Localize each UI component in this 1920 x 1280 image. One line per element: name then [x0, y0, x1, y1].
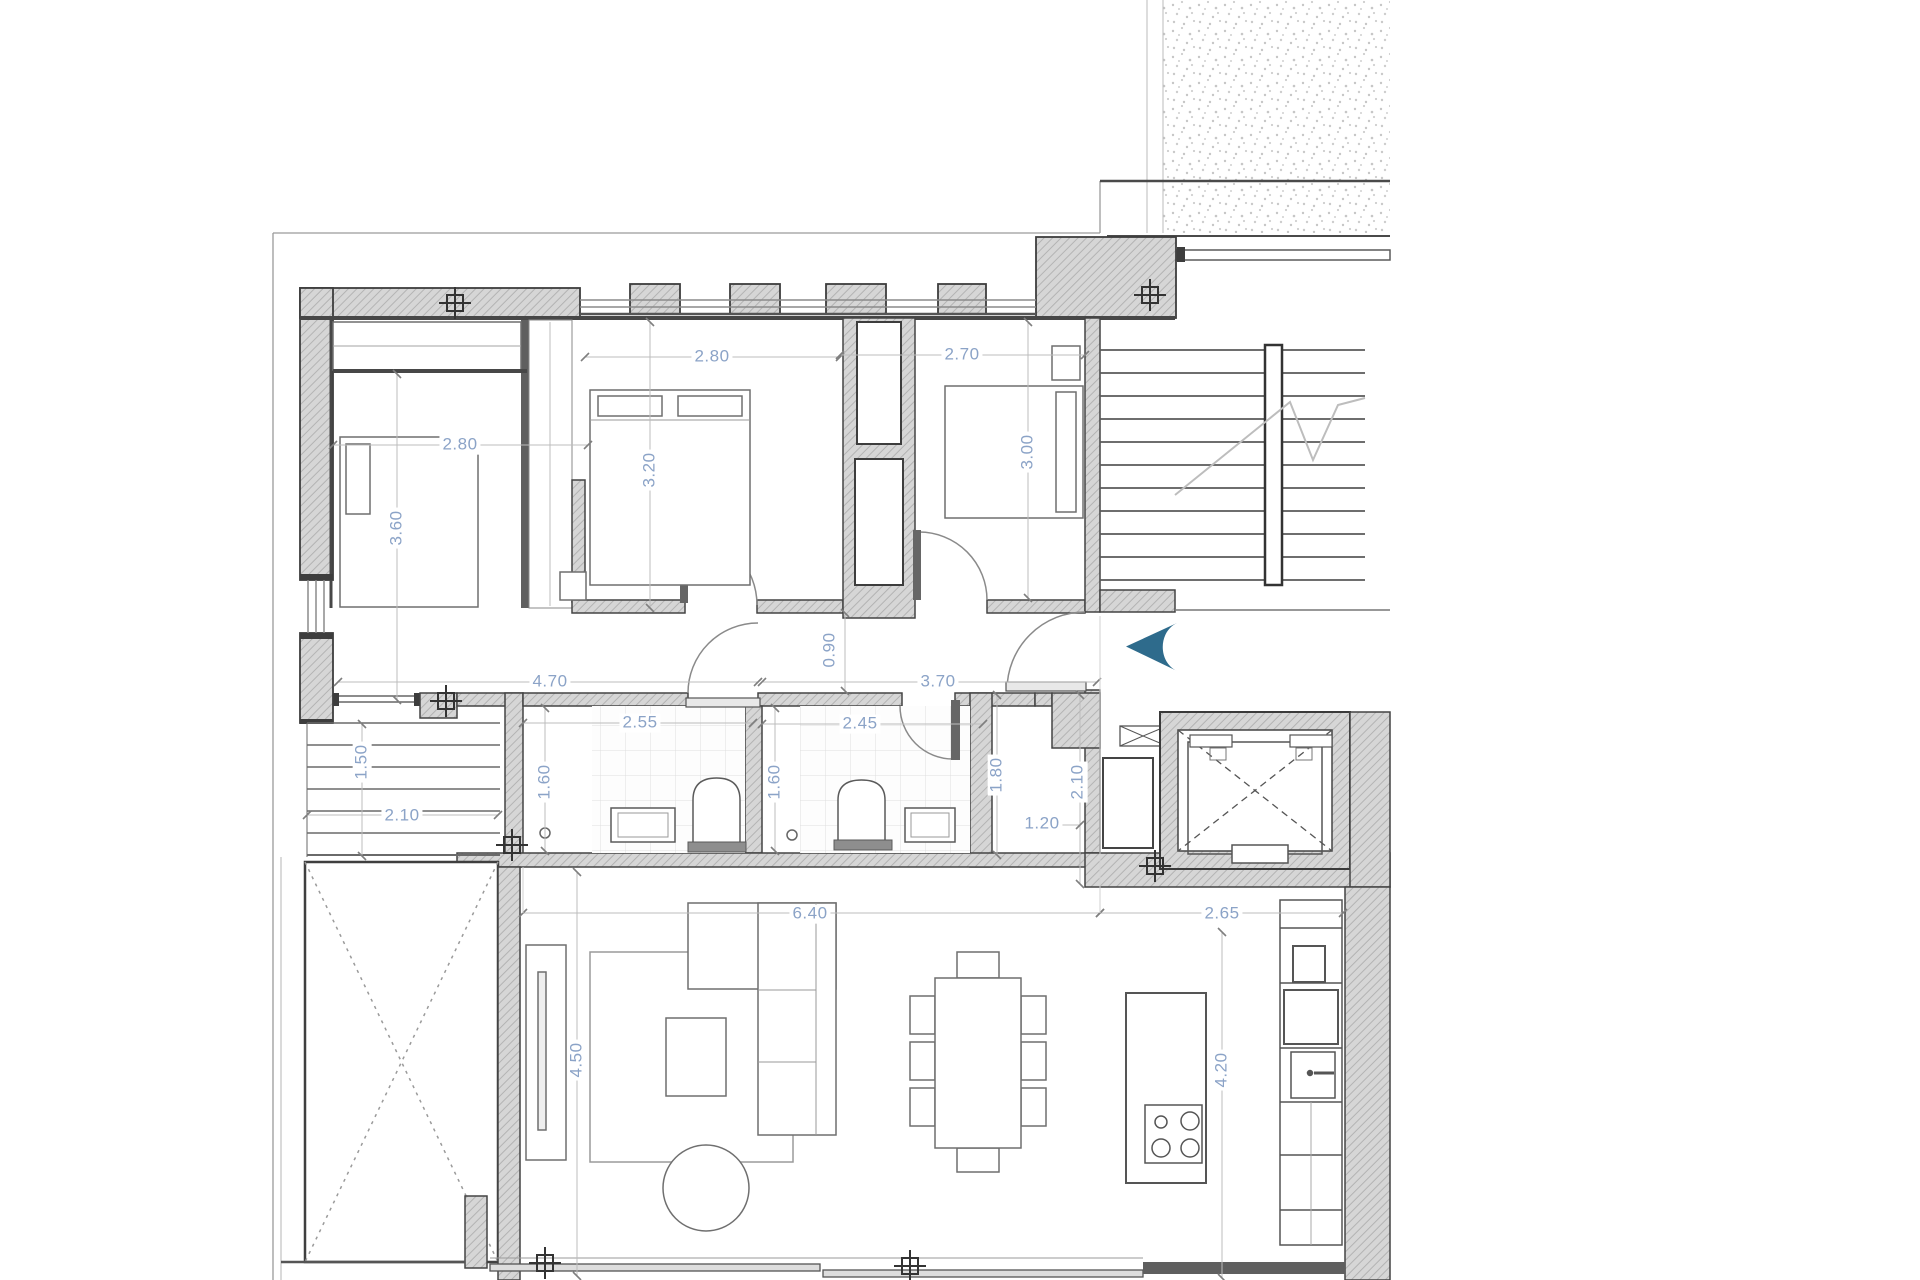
dim-hallway-right: 3.70: [917, 673, 958, 692]
dim-entry-width: 1.20: [1021, 815, 1062, 834]
datum-cross-icon: [529, 1247, 561, 1279]
nightstand: [1052, 346, 1080, 380]
dim-bedroom2-depth: 3.20: [641, 449, 660, 490]
dim-bathroom2-side: 1.80: [988, 754, 1007, 795]
entry-door-swing: [1007, 612, 1085, 690]
nightstand: [560, 572, 586, 600]
stair-railing: [1265, 345, 1282, 585]
pouf: [663, 1145, 749, 1231]
balcony-railing: [1177, 250, 1390, 260]
toilet: [838, 780, 885, 845]
chair: [1021, 1088, 1046, 1126]
chair: [910, 1088, 935, 1126]
pillow: [346, 444, 370, 514]
dim-side-stair-width: 2.10: [381, 807, 422, 826]
dim-kitchen-width: 2.65: [1201, 905, 1242, 924]
dining-set: [910, 952, 1046, 1172]
dim-entry-depth: 2.10: [1069, 761, 1088, 802]
dim-hallway-width: 0.90: [821, 629, 840, 670]
dining-table: [935, 978, 1021, 1148]
floor-plan-sheet: 2.80 3.60 2.80 3.20 2.70 3.00 4.70 3.70 …: [0, 0, 1920, 1280]
bathroom2-door-leaf: [951, 700, 960, 760]
dim-bedroom1-width: 2.80: [439, 436, 480, 455]
dim-bathroom1-width: 2.55: [619, 714, 660, 733]
dim-side-stair-depth: 1.50: [353, 741, 372, 782]
bed: [590, 390, 750, 585]
kitchen: [1126, 900, 1342, 1245]
pillow: [678, 396, 742, 416]
shower-drain-icon: [787, 830, 797, 840]
side-stairs: [307, 723, 500, 857]
sliding-glass-door: [823, 1270, 1143, 1277]
tv: [538, 972, 546, 1130]
chair: [910, 996, 935, 1034]
elevator: [1160, 712, 1390, 887]
dim-bedroom3-depth: 3.00: [1019, 431, 1038, 472]
bedroom3-door-swing: [919, 532, 987, 600]
dim-living-width: 6.40: [789, 905, 830, 924]
exterior-ground: [1100, 0, 1390, 262]
bedroom-2-furniture: [560, 390, 750, 600]
dim-kitchen-depth: 4.20: [1213, 1049, 1232, 1090]
pillow: [1056, 392, 1076, 512]
dim-bathroom2-width: 2.45: [839, 715, 880, 734]
chair: [910, 1042, 935, 1080]
entry-door-leaf: [1006, 682, 1086, 691]
chair: [1021, 1042, 1046, 1080]
dim-hallway-left: 4.70: [529, 673, 570, 692]
kitchen-sink: [1291, 1052, 1335, 1098]
counterweight: [1232, 845, 1288, 863]
floor-plan-drawing: [0, 0, 1920, 1280]
entry-arrow-icon: [1126, 623, 1177, 671]
bedroom-3-furniture: [945, 346, 1083, 518]
dim-bathroom2-depth: 1.60: [766, 761, 785, 802]
bathroom1-door-leaf: [686, 698, 760, 707]
bedroom-1-furniture: [333, 322, 527, 607]
dishwasher: [1284, 990, 1338, 1044]
dim-bathroom1-depth: 1.60: [536, 761, 555, 802]
chair: [957, 1148, 999, 1172]
chair: [957, 952, 999, 978]
bedroom3-door-leaf: [913, 530, 921, 600]
oven: [1293, 946, 1325, 982]
dim-living-depth: 4.50: [568, 1039, 587, 1080]
dim-bedroom2-width: 2.80: [691, 348, 732, 367]
sliding-glass-door: [490, 1264, 820, 1271]
dim-bedroom3-width: 2.70: [941, 346, 982, 365]
chair: [1021, 996, 1046, 1034]
entry-niche: [1103, 758, 1153, 848]
coffee-table: [666, 1018, 726, 1096]
pillow: [598, 396, 662, 416]
main-stairs: [1100, 345, 1365, 585]
toilet: [693, 778, 740, 850]
dim-bedroom1-depth: 3.60: [388, 507, 407, 548]
sofa: [758, 903, 836, 1135]
